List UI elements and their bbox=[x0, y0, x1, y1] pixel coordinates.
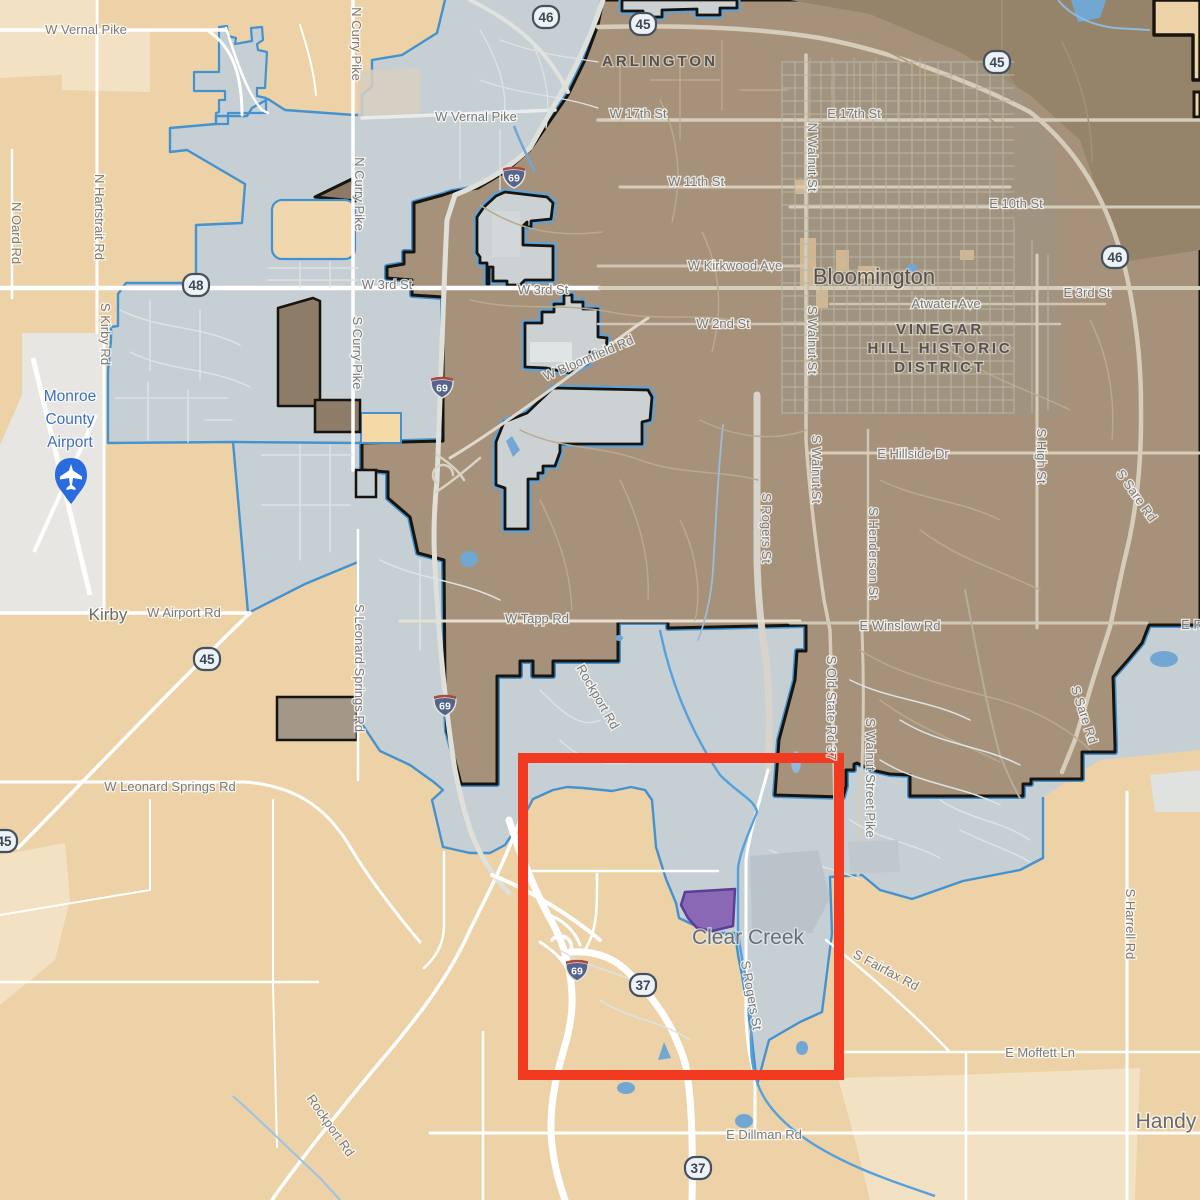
svg-text:E Dillman Rd: E Dillman Rd bbox=[726, 1127, 802, 1142]
svg-text:S Rogers St: S Rogers St bbox=[759, 493, 774, 563]
svg-text:W Leonard Springs Rd: W Leonard Springs Rd bbox=[104, 779, 236, 794]
svg-text:Kirby: Kirby bbox=[89, 605, 128, 624]
svg-text:45: 45 bbox=[635, 17, 651, 32]
svg-text:Handy: Handy bbox=[1136, 1110, 1197, 1133]
svg-text:N Walnut St: N Walnut St bbox=[805, 123, 820, 192]
svg-text:W Kirkwood Ave: W Kirkwood Ave bbox=[688, 258, 782, 273]
svg-text:N Hartstrait Rd: N Hartstrait Rd bbox=[92, 174, 107, 260]
svg-text:S Curry Pike: S Curry Pike bbox=[350, 317, 365, 390]
svg-text:S High St: S High St bbox=[1034, 429, 1049, 484]
svg-text:W 2nd St: W 2nd St bbox=[696, 316, 750, 331]
svg-text:W 3rd St: W 3rd St bbox=[362, 277, 413, 292]
svg-text:S Walnut St: S Walnut St bbox=[809, 435, 824, 504]
svg-text:45: 45 bbox=[0, 834, 12, 849]
svg-text:N Oard Rd: N Oard Rd bbox=[9, 202, 24, 264]
svg-text:W 11th St: W 11th St bbox=[668, 174, 725, 189]
svg-text:69: 69 bbox=[436, 383, 448, 395]
svg-text:VINEGAR: VINEGAR bbox=[896, 321, 984, 338]
svg-text:E Hillside Dr: E Hillside Dr bbox=[877, 446, 949, 461]
svg-text:Bloomington: Bloomington bbox=[813, 264, 935, 289]
svg-text:46: 46 bbox=[538, 10, 554, 25]
svg-text:37: 37 bbox=[690, 1161, 705, 1176]
svg-text:S Harrell Rd: S Harrell Rd bbox=[1123, 889, 1138, 960]
svg-text:ARLINGTON: ARLINGTON bbox=[602, 53, 718, 70]
svg-text:E 17th St: E 17th St bbox=[827, 106, 881, 121]
svg-text:69: 69 bbox=[571, 966, 583, 978]
svg-text:S Kirby Rd: S Kirby Rd bbox=[98, 303, 113, 365]
svg-text:County: County bbox=[45, 411, 94, 428]
svg-text:N Curry Pike: N Curry Pike bbox=[352, 157, 367, 231]
svg-text:DISTRICT: DISTRICT bbox=[894, 359, 986, 376]
svg-text:S Henderson St: S Henderson St bbox=[866, 507, 881, 599]
svg-text:E Moffett Ln: E Moffett Ln bbox=[1005, 1045, 1075, 1060]
svg-text:E Winslow Rd: E Winslow Rd bbox=[860, 618, 941, 633]
svg-text:E 3rd St: E 3rd St bbox=[1064, 285, 1111, 300]
svg-text:Atwater Ave: Atwater Ave bbox=[911, 296, 980, 311]
svg-text:45: 45 bbox=[989, 55, 1005, 70]
svg-text:Airport: Airport bbox=[47, 434, 93, 451]
svg-text:69: 69 bbox=[508, 173, 520, 185]
svg-text:W 17th St: W 17th St bbox=[609, 106, 666, 121]
svg-text:W 3rd St: W 3rd St bbox=[518, 282, 569, 297]
svg-text:N Curry Pike: N Curry Pike bbox=[349, 7, 364, 81]
svg-text:W Vernal Pike: W Vernal Pike bbox=[435, 109, 517, 124]
svg-text:S Walnut St: S Walnut St bbox=[805, 306, 820, 375]
svg-text:HILL HISTORIC: HILL HISTORIC bbox=[867, 340, 1012, 357]
svg-text:48: 48 bbox=[188, 278, 204, 293]
svg-text:S Old State Rd 37: S Old State Rd 37 bbox=[824, 656, 839, 761]
svg-text:W Airport Rd: W Airport Rd bbox=[147, 605, 221, 620]
svg-text:69: 69 bbox=[439, 701, 451, 713]
svg-text:W Vernal Pike: W Vernal Pike bbox=[45, 22, 127, 37]
svg-text:Clear Creek: Clear Creek bbox=[692, 926, 805, 949]
svg-text:Monroe: Monroe bbox=[44, 388, 97, 405]
svg-text:S Walnut Street Pike: S Walnut Street Pike bbox=[863, 718, 878, 837]
svg-text:E 10th St: E 10th St bbox=[989, 196, 1043, 211]
svg-text:46: 46 bbox=[1107, 250, 1123, 265]
svg-text:S Leonard Springs Rd: S Leonard Springs Rd bbox=[352, 604, 367, 732]
svg-text:E R: E R bbox=[1181, 617, 1200, 632]
svg-text:45: 45 bbox=[199, 652, 215, 667]
svg-text:37: 37 bbox=[635, 978, 650, 993]
svg-text:W Tapp Rd: W Tapp Rd bbox=[505, 611, 569, 626]
